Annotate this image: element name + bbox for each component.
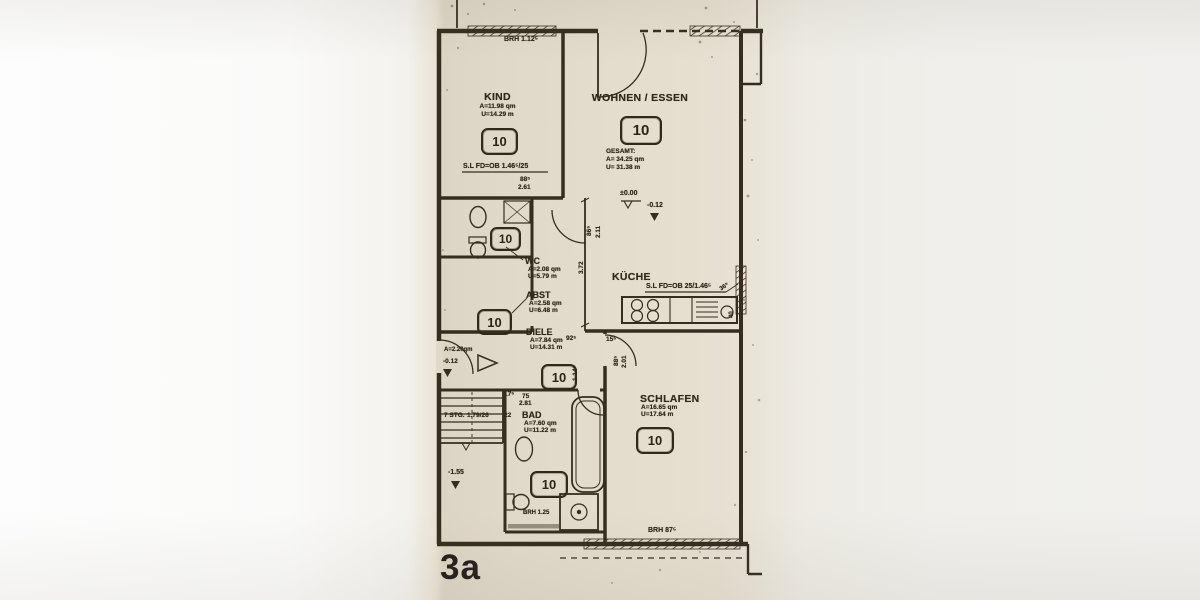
room-perimeter-abst: U=6.48 m [529, 307, 558, 314]
room-number-bad: 10 [530, 471, 568, 498]
level-zero-icon [624, 201, 632, 208]
room-label-wohnen: WOHNEN / ESSEN [585, 92, 695, 104]
room-label-diele: DIELE [526, 327, 553, 337]
door-arc-entrance [439, 340, 473, 374]
dim-22: 22 [504, 412, 511, 419]
door-arc-wohnen [598, 33, 646, 97]
floorplan-linework [0, 0, 1200, 600]
room-label-kueche: KÜCHE [612, 271, 651, 283]
exterior-walls [437, 0, 763, 574]
door-arc-bad [578, 390, 603, 415]
stairs-steps-label: 7 STG. [444, 412, 465, 419]
dim-261: 2.61 [518, 184, 531, 191]
sheet-number: 3a [440, 548, 481, 588]
brh-bad: BRH 1.25 [523, 510, 549, 517]
gesamt-perimeter: U= 31.38 m [606, 164, 640, 171]
illegible-text-smudge [508, 524, 560, 529]
dim-925: 92⁵ [566, 335, 576, 342]
dim-865: 86⁵ [586, 226, 593, 236]
room-perimeter-wc: U=5.79 m [528, 273, 557, 280]
bathroom-fixtures [506, 397, 604, 530]
room-area-kind: A=11.98 qm [455, 103, 540, 110]
brh-bottom-label: BRH 87⁵ [648, 527, 676, 535]
gesamt-label: GESAMT: [606, 148, 635, 155]
room-label-kind: KIND [455, 91, 540, 103]
dim-211: 2.11 [595, 226, 602, 238]
brh-top-label: BRH 1.12⁵ [504, 36, 538, 44]
room-perimeter-bad: U=11.22 m [524, 427, 556, 434]
wc-sink-icon [470, 207, 486, 228]
level-minus155-label: -1.55 [448, 469, 464, 477]
room-number-wc: 10 [490, 227, 521, 251]
level-minus012-icon [650, 213, 659, 221]
level-minus012-label: -0.12 [647, 202, 663, 210]
room-perimeter-diele: U=14.31 m [530, 344, 562, 351]
room-label-wc: WC [525, 256, 540, 266]
sl-note-left: S.L FD=OB 1.46⁵/25 [463, 163, 528, 171]
scanned-photo-background: KIND A=11.98 qm U=14.29 m 10 WOHNEN / ES… [0, 0, 1200, 600]
scan-noise [442, 3, 760, 584]
dim-40: 40 [729, 311, 736, 318]
kitchen-counter-icon [622, 297, 737, 323]
room-label-bad: BAD [522, 410, 542, 420]
room-number-abst: 10 [477, 309, 512, 335]
door-arc-kueche [552, 210, 585, 243]
dim-88: 88⁵ [520, 176, 530, 183]
sl-note-right: S.L FD=OB 25/1.46⁵ [646, 283, 711, 291]
dim-281: 2.81 [519, 400, 532, 407]
floor-plan: KIND A=11.98 qm U=14.29 m 10 WOHNEN / ES… [0, 0, 1200, 600]
room-label-abst: ABST [526, 290, 551, 300]
room-perimeter-schlafen: U=17.64 m [641, 411, 673, 418]
dim-372: 3.72 [578, 261, 585, 274]
dim-175: 17⁵ [504, 391, 514, 398]
entry-level-label: -0.12 [443, 358, 458, 365]
bad-toilet-icon [513, 495, 529, 510]
dim-885b: 88⁵ [613, 356, 620, 366]
room-number-wohnen: 10 [620, 116, 662, 145]
level-zero-label: ±0.00 [620, 190, 637, 198]
entry-area-label: A=2.20qm [444, 347, 473, 354]
bad-sink-icon [516, 437, 533, 461]
bathtub-icon [572, 397, 604, 492]
dim-155: 15⁵ [606, 336, 616, 343]
dim-201: 2.01 [621, 355, 628, 368]
gesamt-area: A= 34.25 qm [606, 156, 644, 163]
dim-1145: 1.14⁵ [572, 365, 579, 381]
room-perimeter-kind: U=14.29 m [455, 111, 540, 118]
stairs-dim-label: 1.79/26 [467, 412, 489, 419]
room-number-kind: 10 [481, 128, 518, 155]
entry-level-icon [443, 369, 452, 377]
level-minus155-icon [451, 481, 460, 489]
entrance-arrow-icon [478, 355, 497, 371]
room-number-schlafen: 10 [636, 427, 674, 454]
